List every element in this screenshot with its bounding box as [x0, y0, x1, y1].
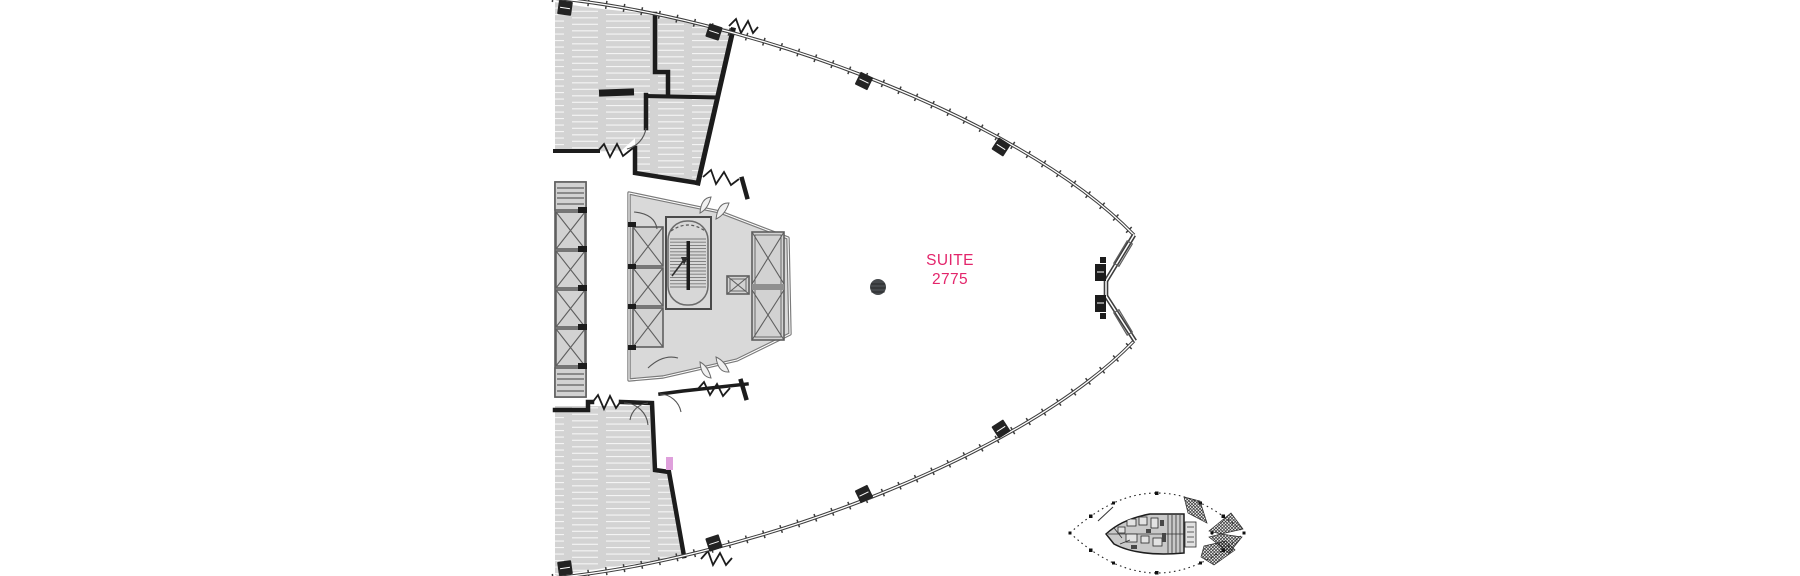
core-stair — [666, 217, 711, 309]
keyplan-suite-dot — [1210, 531, 1213, 534]
building-core — [628, 193, 790, 380]
main-floorplan — [552, 0, 1135, 576]
key-plan — [1069, 492, 1246, 575]
suite-label-number: 2775 — [898, 271, 1002, 290]
floorplan-canvas: SUITE 2775 — [0, 0, 1800, 576]
small-shaft — [727, 276, 749, 294]
partition-bar — [599, 88, 634, 96]
tip-notch — [1095, 235, 1135, 341]
right-shaft — [752, 232, 784, 340]
column-dot — [870, 279, 886, 295]
room-lower-left — [555, 406, 684, 575]
core-elevators — [628, 222, 663, 350]
suite-entry-marker — [666, 457, 673, 470]
keyplan-core-annex — [1185, 522, 1196, 547]
elevator-bank-left — [555, 182, 587, 397]
suite-label-name: SUITE — [898, 252, 1002, 271]
suite-label[interactable]: SUITE 2775 — [898, 252, 1002, 289]
keyplan-partition-line — [1098, 507, 1113, 521]
